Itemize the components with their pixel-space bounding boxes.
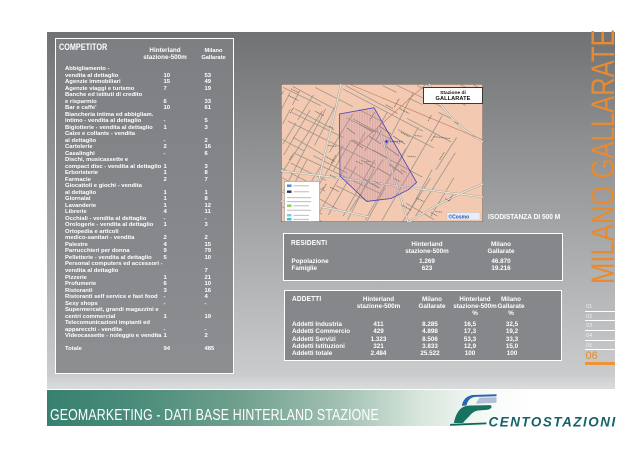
svg-text:©Cosmo: ©Cosmo (449, 213, 470, 220)
svg-text:CENTOSTAZIONI: CENTOSTAZIONI (489, 414, 617, 429)
